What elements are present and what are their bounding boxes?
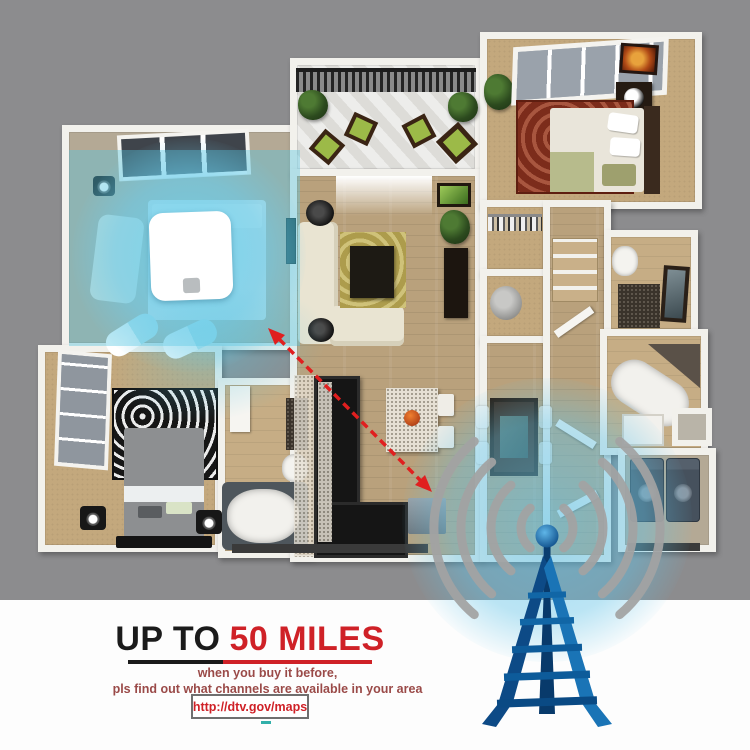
speaker-top-left [93,176,115,196]
sofa-bottom-section [330,306,404,346]
headline: UP TO50 MILES [112,620,388,659]
bed-top-left [148,200,266,320]
dining-table-2 [490,398,538,476]
bed-bench [116,536,212,548]
entry-light [336,176,432,216]
linen-shelves [552,238,598,302]
balcony-railing [296,68,476,92]
coffee-table [350,246,394,298]
wall-art-teal [286,218,296,264]
dining-chair-2 [438,426,454,448]
storage-niche [672,408,712,446]
mirror-right [660,265,690,323]
kitchen-floor [294,375,316,557]
balcony-plant-right [448,92,478,122]
ghost-chair-3 [539,406,552,428]
dining-chair-1 [438,394,454,416]
tv-art [437,183,471,207]
balcony-plant-left [298,90,328,120]
ghost-chair-1 [476,406,489,428]
vanity-right [618,284,660,328]
bottom-wall-window-right [628,543,700,551]
living-plant [440,210,470,244]
promo-subtext: when you buy it before, pls find out wha… [95,666,440,697]
toilet-right [612,246,638,276]
bed-top-right [550,108,644,192]
headline-underline [128,660,372,664]
water-heater [490,286,522,320]
promo-subline-1: when you buy it before, [95,666,440,682]
side-table-lamp-1 [306,200,334,226]
corner-plant [484,74,514,110]
side-table-lamp-2 [308,318,334,342]
speaker-bottom-left-1 [80,506,106,530]
kitchen-appliance [408,498,446,534]
bottom-wall-window-left [232,544,428,553]
bed-bottom-left [124,428,204,538]
antenna-range-advertisement: UP TO50 MILES when you buy it before, pl… [0,0,750,750]
wall-art-orange [619,43,659,76]
dtv-maps-link[interactable]: http://dtv.gov/maps [191,694,309,719]
dryer [666,458,700,522]
kitchen-counter-top-strip [318,382,332,542]
room-walkin-closet [480,200,550,276]
window-dark-top-left [117,129,251,182]
bath-cabinet [622,414,664,446]
headline-highlight: 50 MILES [230,620,385,658]
headboard-top-right [644,106,660,194]
ghost-chair-2 [476,442,489,464]
ghost-chair-4 [539,442,552,464]
closet-clothes [488,217,542,231]
dining-centerpiece [404,410,420,426]
headline-prefix: UP TO [115,620,220,658]
window-bottom-left [54,350,112,471]
washer [630,458,664,522]
teal-dash [261,721,271,724]
speaker-bottom-left-2 [196,510,222,534]
media-console [444,248,468,318]
bathroom-door [230,386,250,432]
